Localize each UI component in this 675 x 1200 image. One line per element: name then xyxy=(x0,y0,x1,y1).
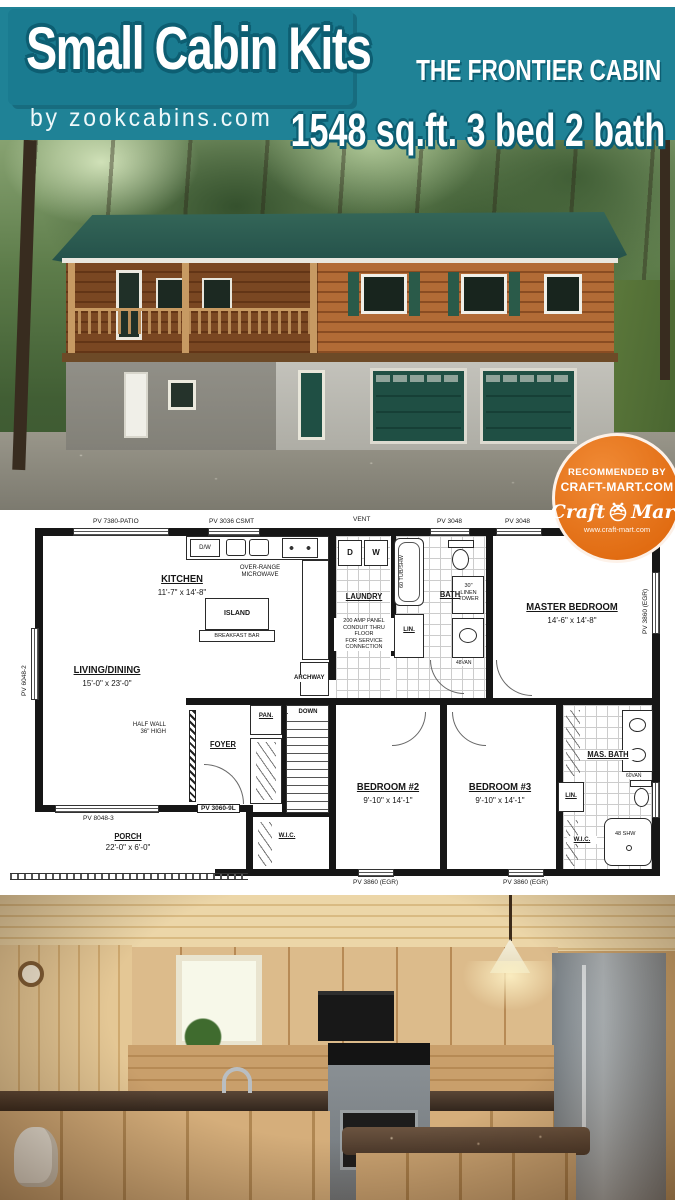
porch-dims: 22'-0" x 6'-0" xyxy=(79,842,177,853)
linen-hall-name: LIN. xyxy=(397,626,421,634)
washer: W xyxy=(364,540,388,566)
deck-railing xyxy=(68,308,316,334)
patio-door-label: PV 7380-PATIO xyxy=(92,518,140,525)
kitchen-counter-side xyxy=(302,560,329,660)
bath-window-label: PV 3048 xyxy=(436,518,463,525)
master-bath-window xyxy=(652,782,660,818)
recommended-badge: RECOMMENDED BY CRAFT-MART.COM Craft Mart… xyxy=(552,433,675,563)
wic2-rod xyxy=(258,822,272,866)
master-top-window xyxy=(496,528,542,536)
room-pantry: PAN. xyxy=(253,712,279,720)
logo-text-left: Craft xyxy=(551,501,605,523)
range xyxy=(282,538,318,558)
living-dims: 15'-0" x 23'-0" xyxy=(55,678,158,689)
front-door-label: PV 3060-9L xyxy=(197,804,240,813)
stairs-down xyxy=(286,705,329,813)
bed2-dims: 9'-10" x 14'-1" xyxy=(341,795,435,806)
bed2-window xyxy=(358,869,394,877)
bed2-window-label: PV 3860 (EGR) xyxy=(352,879,399,886)
linen-master-name: LIN. xyxy=(560,792,583,800)
deck-floor-band xyxy=(62,353,618,362)
dishwasher: D/W xyxy=(190,539,220,557)
shower-drain xyxy=(626,845,632,851)
half-wall xyxy=(189,710,196,802)
bed3-name: BEDROOM #3 xyxy=(453,782,547,795)
garage-door-panels xyxy=(486,381,571,438)
bed2-door-swing xyxy=(392,712,426,746)
specs-text: 1548 sq.ft. 3 bed 2 bath xyxy=(290,103,665,157)
porch-railing xyxy=(10,873,248,880)
stairs-down-label: DOWN xyxy=(288,709,328,716)
master-shower-label: 48 SHW xyxy=(615,831,635,838)
lower-patio-door xyxy=(124,372,148,438)
microwave-note: OVER-RANGE MICROWAVE xyxy=(228,565,292,579)
living-bottom-window-label: PV 8048-3 xyxy=(82,815,115,822)
porch-post xyxy=(182,263,189,355)
badge-line2: CRAFT-MART.COM xyxy=(561,480,674,494)
basement-entry-door xyxy=(298,370,325,440)
floor-plan: DOWN HALF WALL 36" HIGH PV 7380-PATIO PV… xyxy=(0,510,675,895)
room-porch: PORCH 22'-0" x 6'-0" xyxy=(79,832,177,853)
logo-text-right: Mart xyxy=(631,501,675,523)
sink-basin xyxy=(249,539,269,556)
room-wic-bed3: W.I.C. xyxy=(567,836,597,844)
upper-window xyxy=(461,274,507,314)
toilet-bowl xyxy=(452,549,469,570)
kitchen-window-label: PV 3036 CSMT xyxy=(208,518,255,525)
room-bed2: BEDROOM #2 9'-10" x 14'-1" xyxy=(341,782,435,805)
wic2-name: W.I.C. xyxy=(264,832,311,840)
wall-mid xyxy=(186,698,660,705)
master-top-window-label: PV 3048 xyxy=(504,518,531,525)
room-kitchen: KITCHEN 11'-7" x 14'-8" xyxy=(133,574,231,597)
garage-door xyxy=(480,368,577,444)
photo-vignette xyxy=(0,895,675,1200)
master-toilet-bowl xyxy=(634,788,649,807)
garage-door-windows xyxy=(376,375,461,382)
vent-label: VENT xyxy=(352,516,371,523)
tub-shower: 60 TUB/SHW xyxy=(394,538,424,606)
sink-basin xyxy=(226,539,246,556)
breakfast-bar: BREAKFAST BAR xyxy=(199,630,275,642)
wall-wic-left xyxy=(246,805,253,873)
wall-stairs-right xyxy=(329,705,336,869)
garage-door xyxy=(370,368,467,444)
upper-window xyxy=(544,274,582,314)
porch-name: PORCH xyxy=(79,832,177,842)
foreground-tree-trunk xyxy=(660,140,670,380)
porch-post xyxy=(68,263,75,355)
bed3-door-swing xyxy=(452,712,486,746)
cabin-building xyxy=(52,212,627,458)
room-bath: BATH xyxy=(427,590,472,600)
bath-vanity-label: 48VAN xyxy=(456,660,471,666)
badge-line1: RECOMMENDED BY xyxy=(568,467,666,478)
room-living: LIVING/DINING 15'-0" x 23'-0" xyxy=(55,665,158,688)
kitchen-window xyxy=(208,528,260,536)
cabin-roof xyxy=(52,212,627,262)
coat-closet-rod xyxy=(256,742,276,800)
room-linen-master: LIN. xyxy=(560,792,583,800)
amp-panel-note: 200 AMP PANEL CONDUIT THRU FLOOR FOR SER… xyxy=(334,618,394,651)
garage-door-panels xyxy=(376,381,461,438)
wall-bath-master xyxy=(486,536,493,698)
kitchen-name: KITCHEN xyxy=(133,574,231,587)
window-shutter xyxy=(448,272,459,316)
wall-bed2-bed3 xyxy=(440,705,447,869)
master-vanity-label: 60VAN xyxy=(626,773,641,779)
window-shutter xyxy=(509,272,520,316)
kitchen-photo xyxy=(0,895,675,1200)
room-foyer: FOYER xyxy=(200,740,247,750)
room-laundry: LAUNDRY xyxy=(336,592,392,602)
hall-linen-closet xyxy=(394,614,424,658)
bed3-window xyxy=(508,869,544,877)
dryer: D xyxy=(338,540,362,566)
bath-sink xyxy=(459,628,477,643)
living-left-window xyxy=(31,628,39,700)
wall-kitchen-laundry xyxy=(329,528,336,680)
pantry-name: PAN. xyxy=(253,712,279,720)
living-bottom-window xyxy=(55,805,159,813)
patio-door-window xyxy=(73,528,169,536)
master-name: MASTER BEDROOM xyxy=(516,602,629,615)
foyer-name: FOYER xyxy=(200,740,247,750)
master-closet-rod xyxy=(566,710,580,776)
porch-post xyxy=(310,263,317,355)
wic3-name: W.I.C. xyxy=(567,836,597,844)
upper-porch-window xyxy=(202,278,232,310)
craft-mart-logo: Craft Mart xyxy=(551,501,675,523)
front-door-swing xyxy=(204,764,244,804)
model-name: THE FRONTIER CABIN xyxy=(416,55,661,88)
masbath-name: MAS. BATH xyxy=(582,750,635,760)
pin-root: Small Cabin Kits by zookcabins.com THE F… xyxy=(0,0,675,1200)
yarn-ball-icon xyxy=(607,501,629,523)
bed3-dims: 9'-10" x 14'-1" xyxy=(453,795,547,806)
room-linen-hall: LIN. xyxy=(397,626,421,634)
master-right-window xyxy=(652,572,660,634)
living-name: LIVING/DINING xyxy=(55,665,158,678)
bed3-window-label: PV 3860 (EGR) xyxy=(502,879,549,886)
bath-top-window xyxy=(430,528,470,536)
toilet-tank xyxy=(448,540,474,548)
badge-url: www.craft-mart.com xyxy=(584,525,650,534)
lower-window xyxy=(168,380,196,410)
room-wic-bed2: W.I.C. xyxy=(264,832,311,840)
laundry-name: LAUNDRY xyxy=(336,592,392,602)
master-door-swing xyxy=(496,660,532,696)
archway-label: ARCHWAY xyxy=(294,675,324,682)
top-border xyxy=(0,0,675,7)
room-masbath: MAS. BATH xyxy=(582,750,635,760)
window-shutter xyxy=(409,272,420,316)
kitchen-island: ISLAND xyxy=(205,598,269,630)
window-shutter xyxy=(348,272,359,316)
upper-window xyxy=(361,274,407,314)
bath-name: BATH xyxy=(427,590,472,600)
garage-door-windows xyxy=(486,375,571,382)
master-dims: 14'-6" x 14'-8" xyxy=(516,615,629,626)
wall-bottom xyxy=(215,869,660,876)
pin-title: Small Cabin Kits xyxy=(26,14,370,83)
byline: by zookcabins.com xyxy=(30,104,273,133)
master-sink xyxy=(629,718,646,732)
living-left-window-label: PV 6048-2 xyxy=(20,636,29,696)
tub-label: 60 TUB/SHW xyxy=(398,542,420,602)
master-right-window-label: PV 3860 (EGR) xyxy=(641,574,650,634)
room-bed3: BEDROOM #3 9'-10" x 14'-1" xyxy=(453,782,547,805)
room-master: MASTER BEDROOM 14'-6" x 14'-8" xyxy=(516,602,629,625)
master-toilet-tank xyxy=(630,780,652,787)
half-wall-note: HALF WALL 36" HIGH xyxy=(108,722,166,736)
bed2-name: BEDROOM #2 xyxy=(341,782,435,795)
master-shower: 48 SHW xyxy=(604,818,652,866)
kitchen-dims: 11'-7" x 14'-8" xyxy=(133,587,231,598)
